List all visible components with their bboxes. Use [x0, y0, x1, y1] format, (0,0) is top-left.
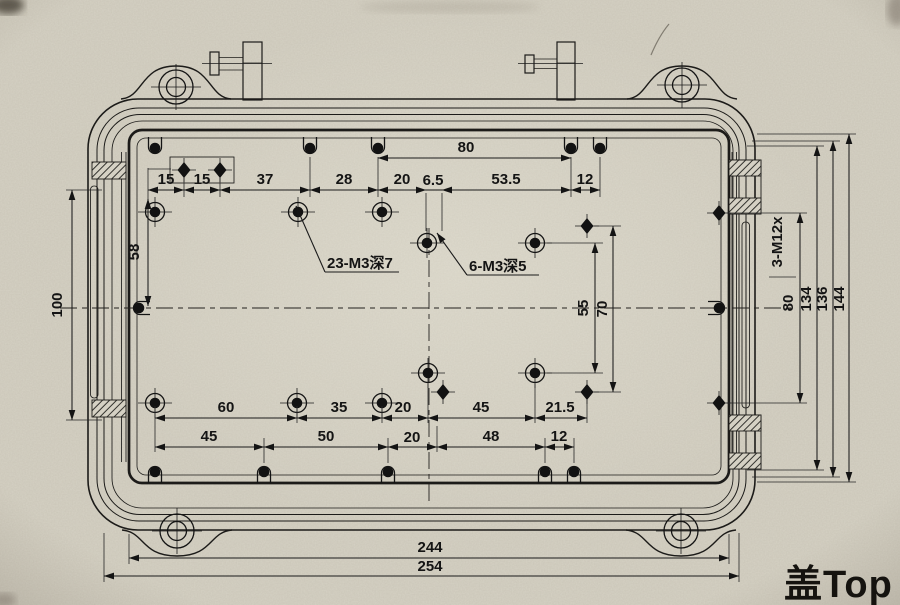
dim-244: 244 — [417, 539, 443, 556]
engineering-drawing: 80 15 15 37 28 20 6.5 53.5 12 5 — [0, 0, 900, 605]
dim-55: 55 — [575, 300, 592, 317]
dim-21-5: 21.5 — [545, 399, 574, 416]
dim-15a: 15 — [158, 171, 175, 188]
dim-28: 28 — [336, 171, 353, 188]
dim-35: 35 — [331, 399, 348, 416]
dim-20c: 20 — [404, 429, 421, 446]
dim-20: 20 — [394, 171, 411, 188]
dim-50: 50 — [318, 428, 335, 445]
dim-12: 12 — [577, 171, 594, 188]
dim-58: 58 — [126, 244, 143, 261]
dim-48: 48 — [483, 428, 500, 445]
dim-45a: 45 — [473, 399, 490, 416]
note-6-m3: 6-M3深5 — [469, 257, 527, 275]
dim-45b: 45 — [201, 428, 218, 445]
dim-15b: 15 — [194, 171, 211, 188]
dim-100: 100 — [49, 292, 66, 317]
dim-254: 254 — [417, 558, 443, 575]
part-title: 盖Top — [784, 564, 893, 605]
wall-boss-hatched — [92, 162, 126, 179]
dim-53-5: 53.5 — [491, 171, 520, 188]
dim-6-5: 6.5 — [423, 172, 444, 189]
dim-136: 136 — [814, 286, 831, 311]
note-gland-thread: 3-M12x — [769, 216, 786, 268]
dim-12b: 12 — [551, 428, 568, 445]
dim-60: 60 — [218, 399, 235, 416]
dim-20b: 20 — [395, 399, 412, 416]
dim-right-80: 80 — [780, 295, 797, 312]
dim-144: 144 — [831, 286, 848, 312]
dim-134: 134 — [798, 286, 815, 312]
dim-37: 37 — [257, 171, 274, 188]
dim-70: 70 — [594, 301, 611, 318]
dim-top-span: 80 — [458, 139, 475, 156]
wall-boss-hatched — [92, 400, 126, 417]
scanned-drawing-page: 80 15 15 37 28 20 6.5 53.5 12 5 — [0, 0, 900, 605]
note-23-m3: 23-M3深7 — [327, 254, 393, 272]
